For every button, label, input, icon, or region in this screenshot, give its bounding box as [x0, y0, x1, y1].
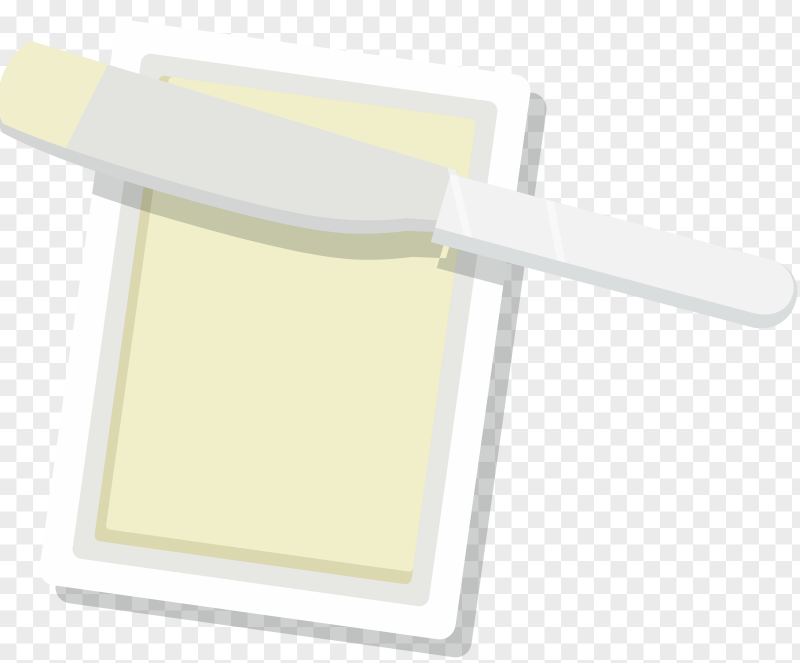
butter-dish-knife-illustration — [0, 0, 800, 663]
transparency-checkerboard-background — [0, 0, 800, 663]
